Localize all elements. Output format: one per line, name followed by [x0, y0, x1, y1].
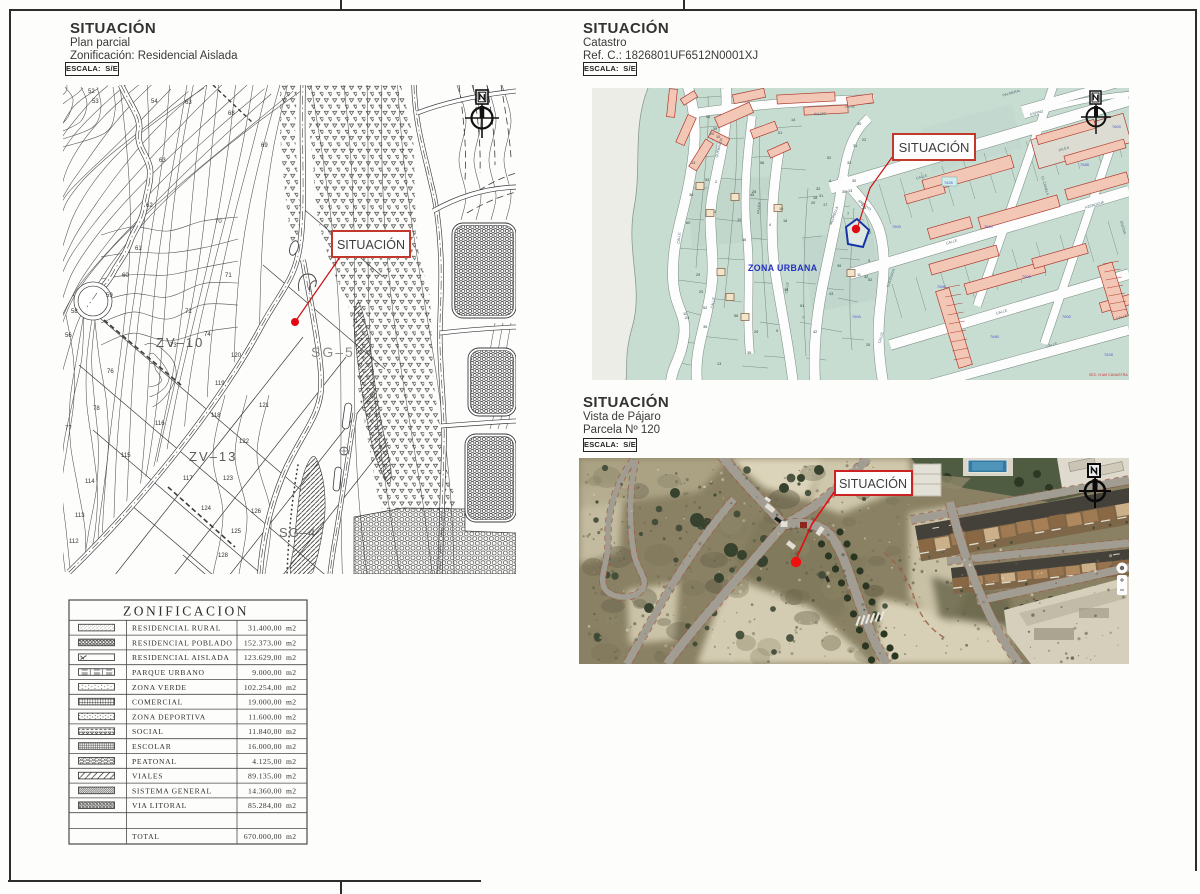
svg-text:ZONA URBANA: ZONA URBANA: [748, 263, 818, 273]
svg-text:114: 114: [85, 479, 95, 485]
svg-text:SEC. N AM CANASTRA: SEC. N AM CANASTRA: [1089, 373, 1128, 377]
svg-text:35: 35: [747, 351, 751, 355]
svg-text:56: 56: [760, 161, 764, 165]
svg-text:70: 70: [215, 219, 222, 225]
svg-text:113: 113: [75, 513, 85, 519]
svg-text:56: 56: [65, 333, 72, 339]
svg-text:20: 20: [699, 290, 703, 294]
svg-text:16.000,00: 16.000,00: [248, 742, 282, 751]
svg-text:ZV–13: ZV–13: [189, 449, 237, 464]
svg-text:CALLE: CALLE: [677, 232, 682, 244]
svg-text:62: 62: [146, 203, 153, 209]
svg-text:PARQUE URBANO: PARQUE URBANO: [132, 668, 205, 677]
svg-text:20: 20: [866, 343, 870, 347]
svg-text:RESIDENCIAL RURAL: RESIDENCIAL RURAL: [132, 624, 221, 633]
svg-text:m2: m2: [286, 832, 297, 841]
svg-text:9: 9: [776, 329, 778, 333]
svg-text:56: 56: [734, 314, 738, 318]
svg-text:32: 32: [847, 161, 851, 165]
svg-text:m2: m2: [286, 624, 297, 633]
svg-text:m2: m2: [286, 801, 297, 810]
svg-text:102.254,00: 102.254,00: [244, 683, 282, 692]
svg-text:10: 10: [779, 207, 783, 211]
svg-text:68: 68: [228, 111, 235, 117]
svg-text:SOCIAL: SOCIAL: [132, 727, 164, 736]
svg-text:36: 36: [689, 193, 693, 197]
svg-text:7688: 7688: [1080, 162, 1090, 167]
svg-text:20: 20: [710, 132, 714, 136]
svg-text:m2: m2: [286, 772, 297, 781]
svg-text:VIALES: VIALES: [132, 772, 163, 781]
svg-text:4.125,00: 4.125,00: [252, 757, 282, 766]
svg-text:13: 13: [848, 189, 852, 193]
svg-text:SG–4: SG–4: [279, 525, 316, 540]
svg-text:m2: m2: [286, 727, 297, 736]
svg-text:42: 42: [813, 330, 817, 334]
svg-text:m2: m2: [286, 668, 297, 677]
svg-text:30: 30: [852, 179, 856, 183]
svg-text:43: 43: [829, 292, 833, 296]
svg-text:63: 63: [185, 100, 192, 106]
svg-text:ZONIFICACION: ZONIFICACION: [123, 604, 249, 619]
svg-text:SISTEMA GENERAL: SISTEMA GENERAL: [132, 786, 212, 795]
svg-text:71: 71: [225, 273, 232, 279]
svg-text:29: 29: [696, 273, 700, 277]
svg-text:56: 56: [706, 115, 710, 119]
svg-text:123.629,00: 123.629,00: [244, 653, 282, 662]
svg-text:17: 17: [823, 203, 827, 207]
svg-text:30: 30: [842, 190, 846, 194]
svg-text:123: 123: [223, 476, 234, 482]
svg-text:76: 76: [107, 369, 114, 375]
svg-text:32: 32: [816, 187, 820, 191]
svg-text:4: 4: [714, 210, 716, 214]
svg-text:112: 112: [69, 539, 79, 545]
svg-text:115: 115: [121, 453, 131, 459]
svg-text:TOTAL: TOTAL: [132, 832, 160, 841]
svg-text:SITUACIÓN: SITUACIÓN: [839, 476, 907, 491]
svg-text:7600: 7600: [892, 224, 902, 229]
svg-text:4: 4: [829, 179, 831, 183]
svg-text:46: 46: [742, 238, 746, 242]
svg-text:9: 9: [868, 259, 870, 263]
svg-text:7600: 7600: [1062, 314, 1072, 319]
svg-text:SG–5: SG–5: [311, 344, 355, 360]
svg-text:2: 2: [715, 180, 717, 184]
svg-text:13: 13: [717, 362, 721, 366]
svg-text:COMERCIAL: COMERCIAL: [132, 698, 183, 707]
svg-text:152.373,00: 152.373,00: [244, 638, 282, 647]
svg-text:52: 52: [868, 278, 872, 282]
svg-text:69: 69: [261, 143, 268, 149]
svg-text:RESIDENCIAL POBLADO: RESIDENCIAL POBLADO: [132, 638, 233, 647]
svg-text:m2: m2: [286, 786, 297, 795]
svg-text:118: 118: [211, 413, 221, 419]
svg-text:7600: 7600: [852, 314, 862, 319]
svg-text:31: 31: [819, 194, 823, 198]
svg-text:128: 128: [218, 553, 229, 559]
svg-text:60: 60: [686, 221, 690, 225]
svg-text:24: 24: [685, 316, 689, 320]
svg-text:7: 7: [802, 316, 804, 320]
svg-text:670.000,00: 670.000,00: [244, 832, 282, 841]
svg-text:31: 31: [853, 144, 857, 148]
svg-text:PA 46: PA 46: [845, 105, 855, 109]
svg-text:RESIDENCIAL AISLADA: RESIDENCIAL AISLADA: [132, 653, 230, 662]
svg-text:SITUACIÓN: SITUACIÓN: [337, 237, 405, 252]
svg-text:32: 32: [864, 275, 868, 279]
svg-text:SITUACIÓN: SITUACIÓN: [899, 140, 970, 155]
svg-text:73: 73: [170, 343, 177, 349]
svg-text:52: 52: [827, 156, 831, 160]
svg-text:53: 53: [92, 99, 99, 105]
svg-text:9.000,00: 9.000,00: [252, 668, 282, 677]
svg-text:31.400,00: 31.400,00: [248, 624, 282, 633]
svg-text:PEATONAL: PEATONAL: [132, 757, 177, 766]
svg-text:7: 7: [847, 212, 849, 216]
svg-text:59: 59: [106, 293, 113, 299]
svg-text:7620: 7620: [984, 224, 994, 229]
svg-text:7600: 7600: [1022, 274, 1032, 279]
svg-text:30: 30: [857, 122, 861, 126]
svg-text:11.840,00: 11.840,00: [248, 727, 282, 736]
svg-text:19.000,00: 19.000,00: [248, 698, 282, 707]
svg-text:39: 39: [713, 127, 717, 131]
svg-text:11: 11: [857, 273, 861, 277]
svg-text:117: 117: [183, 476, 193, 482]
svg-text:85.284,00: 85.284,00: [248, 801, 282, 810]
svg-text:m2: m2: [286, 742, 297, 751]
svg-text:29: 29: [754, 330, 758, 334]
svg-text:13: 13: [691, 161, 695, 165]
svg-text:10: 10: [737, 218, 741, 222]
svg-text:72: 72: [185, 309, 192, 315]
svg-text:VIA LITORAL: VIA LITORAL: [132, 801, 187, 810]
svg-text:51: 51: [800, 304, 804, 308]
svg-text:ZONA VERDE: ZONA VERDE: [132, 683, 187, 692]
svg-text:78: 78: [93, 406, 100, 412]
svg-text:116: 116: [155, 421, 165, 427]
svg-text:m2: m2: [286, 712, 297, 721]
svg-text:35: 35: [703, 325, 707, 329]
svg-text:61: 61: [135, 246, 142, 252]
svg-text:14.360,00: 14.360,00: [248, 786, 282, 795]
svg-text:11.600,00: 11.600,00: [248, 712, 282, 721]
svg-text:52: 52: [88, 89, 95, 95]
svg-text:ZONA DEPORTIVA: ZONA DEPORTIVA: [132, 712, 206, 721]
svg-text:120: 120: [231, 353, 242, 359]
svg-text:60: 60: [122, 273, 129, 279]
svg-text:122: 122: [239, 439, 250, 445]
svg-text:39: 39: [837, 264, 841, 268]
svg-text:m2: m2: [286, 638, 297, 647]
svg-text:7628: 7628: [1104, 352, 1114, 357]
svg-text:124: 124: [201, 506, 212, 512]
svg-text:22: 22: [862, 138, 866, 142]
svg-text:121: 121: [259, 403, 270, 409]
svg-text:125: 125: [231, 529, 242, 535]
svg-text:52: 52: [703, 306, 707, 310]
svg-text:74: 74: [204, 332, 211, 338]
svg-text:m2: m2: [286, 653, 297, 662]
svg-text:ZV–10: ZV–10: [156, 335, 204, 350]
svg-text:PALMO: PALMO: [814, 112, 827, 117]
svg-text:m2: m2: [286, 683, 297, 692]
svg-text:58: 58: [71, 309, 78, 315]
svg-text:51: 51: [778, 131, 782, 135]
svg-text:89.135,00: 89.135,00: [248, 772, 282, 781]
svg-text:77: 77: [65, 426, 72, 432]
svg-text:4: 4: [769, 223, 771, 227]
svg-text:7650: 7650: [937, 284, 947, 289]
svg-text:16: 16: [783, 219, 787, 223]
svg-text:7680: 7680: [990, 334, 1000, 339]
svg-text:7626: 7626: [944, 180, 954, 185]
svg-text:119: 119: [215, 381, 225, 387]
svg-text:m2: m2: [286, 757, 297, 766]
svg-text:54: 54: [151, 99, 158, 105]
svg-text:126: 126: [251, 509, 262, 515]
svg-text:28: 28: [752, 190, 756, 194]
svg-text:18: 18: [813, 196, 817, 200]
svg-text:20: 20: [811, 201, 815, 205]
svg-text:14: 14: [791, 118, 795, 122]
svg-text:53: 53: [705, 178, 709, 182]
svg-text:63: 63: [159, 158, 166, 164]
svg-text:ESCOLAR: ESCOLAR: [132, 742, 172, 751]
svg-text:7600: 7600: [1112, 124, 1122, 129]
svg-text:m2: m2: [286, 698, 297, 707]
